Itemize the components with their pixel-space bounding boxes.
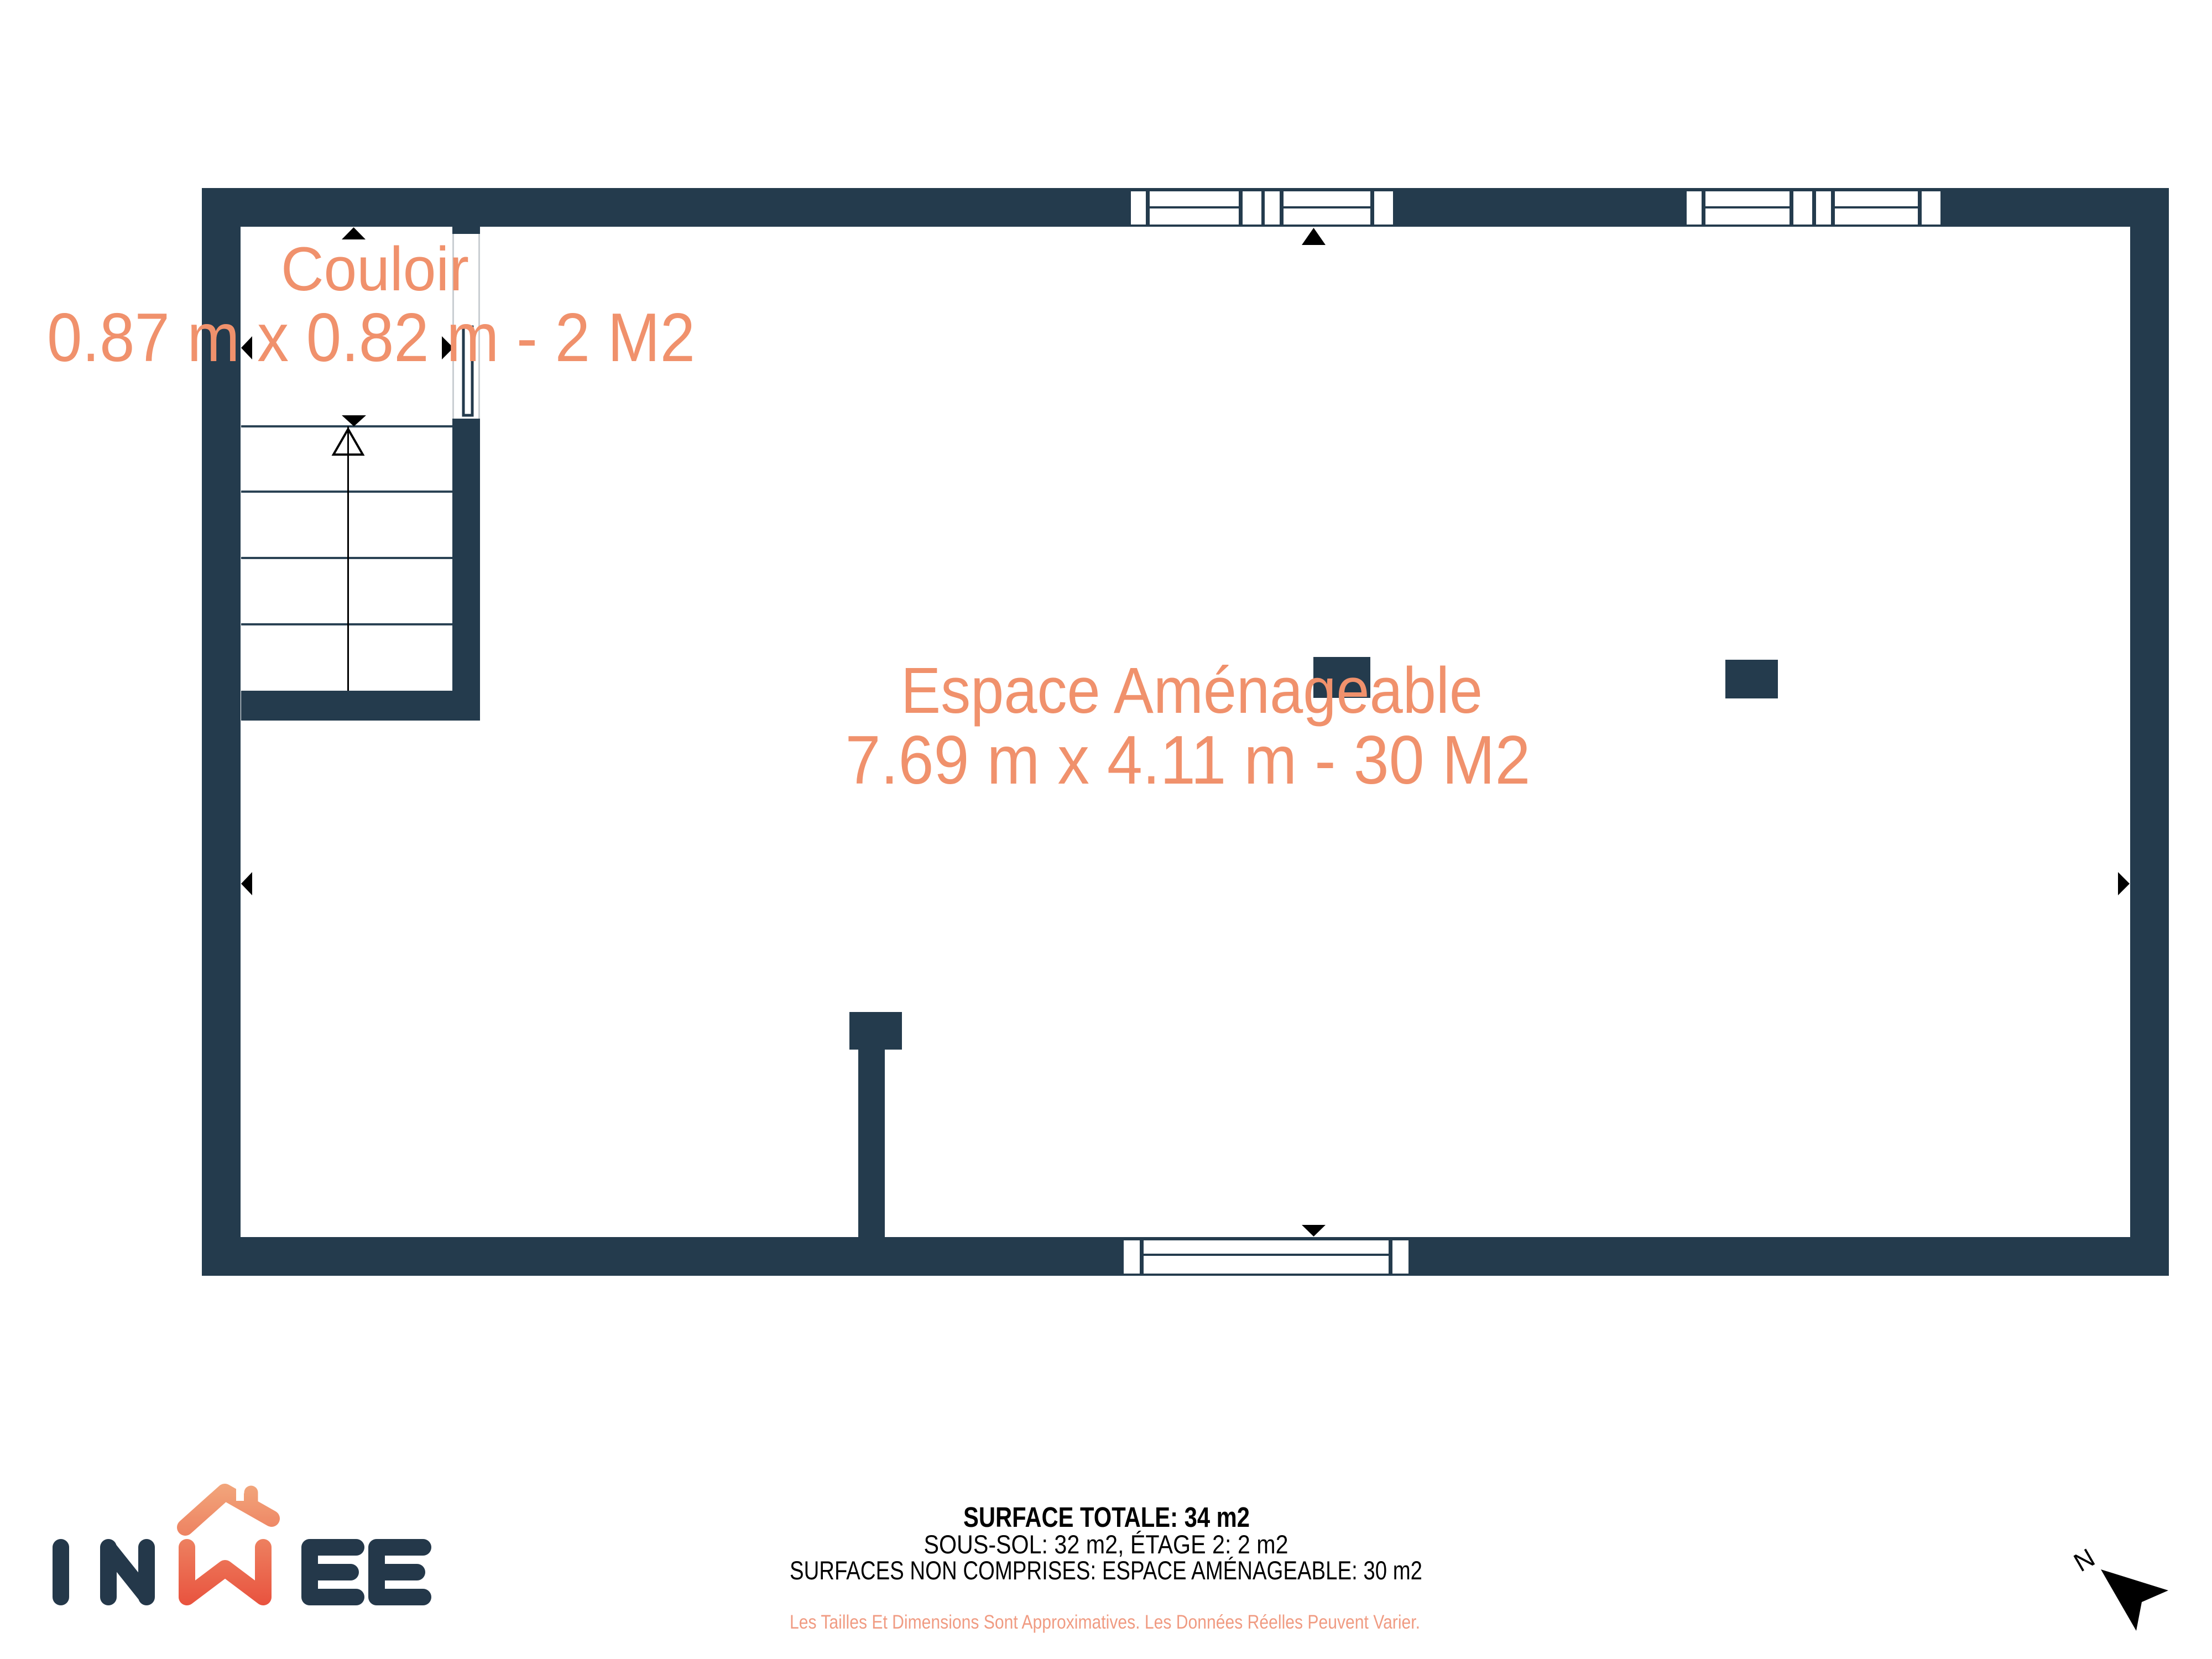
svg-text:Couloir: Couloir <box>281 234 469 304</box>
svg-text:N: N <box>2069 1542 2100 1577</box>
svg-text:SOUS-SOL: 32 m2, ÉTAGE 2: 2 m2: SOUS-SOL: 32 m2, ÉTAGE 2: 2 m2 <box>924 1530 1288 1559</box>
svg-text:SURFACES NON COMPRISES: ESPACE: SURFACES NON COMPRISES: ESPACE AMÉNAGEAB… <box>790 1556 1422 1585</box>
svg-text:0.87 m x 0.82 m - 2 M2: 0.87 m x 0.82 m - 2 M2 <box>47 300 695 376</box>
svg-text:SURFACE TOTALE: 34 m2: SURFACE TOTALE: 34 m2 <box>963 1501 1250 1533</box>
svg-text:Les Tailles Et Dimensions Sont: Les Tailles Et Dimensions Sont Approxima… <box>790 1611 1420 1633</box>
svg-text:Espace Aménageable: Espace Aménageable <box>901 654 1483 727</box>
svg-text:7.69 m x 4.11 m - 30 M2: 7.69 m x 4.11 m - 30 M2 <box>846 722 1531 799</box>
